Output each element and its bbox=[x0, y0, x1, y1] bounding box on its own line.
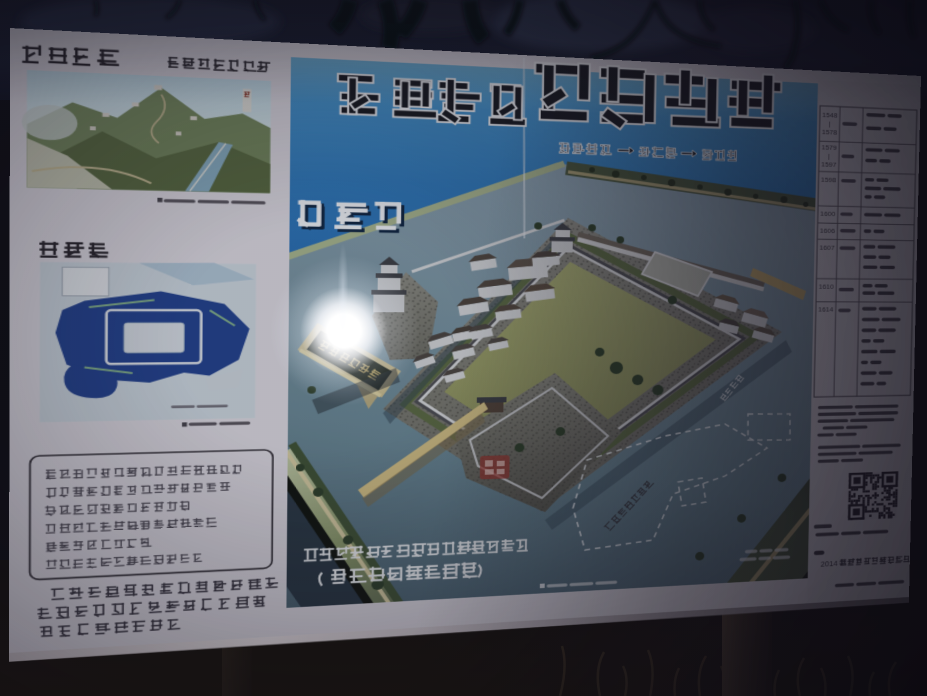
svg-text:1610: 1610 bbox=[819, 283, 835, 291]
svg-text:1579: 1579 bbox=[821, 143, 837, 151]
svg-text:|: | bbox=[828, 152, 830, 160]
svg-text:1548: 1548 bbox=[822, 111, 838, 119]
svg-text:1598: 1598 bbox=[821, 176, 837, 184]
svg-text:|: | bbox=[829, 119, 831, 127]
svg-text:1597: 1597 bbox=[821, 160, 837, 168]
svg-text:1606: 1606 bbox=[820, 227, 836, 235]
svg-text:1614: 1614 bbox=[818, 306, 834, 314]
svg-text:1607: 1607 bbox=[819, 243, 835, 251]
svg-text:1578: 1578 bbox=[822, 128, 838, 136]
svg-text:2014: 2014 bbox=[821, 560, 839, 569]
svg-text:1600: 1600 bbox=[820, 210, 836, 218]
